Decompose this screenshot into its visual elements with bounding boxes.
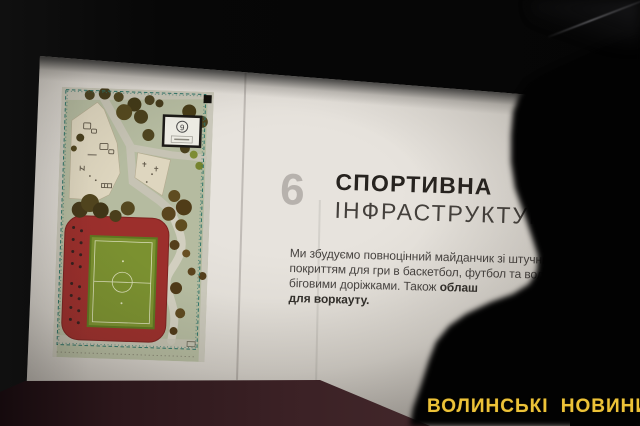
photo-stage: 9 6 СПОРТИВНА ІНФРАСТРУКТУРА Ми збудуємо… <box>0 0 640 426</box>
news-watermark: ВОЛИНСЬКІ НОВИНИ <box>427 396 640 418</box>
person-head-silhouette <box>0 0 640 426</box>
silhouette-wrapper <box>0 0 640 426</box>
